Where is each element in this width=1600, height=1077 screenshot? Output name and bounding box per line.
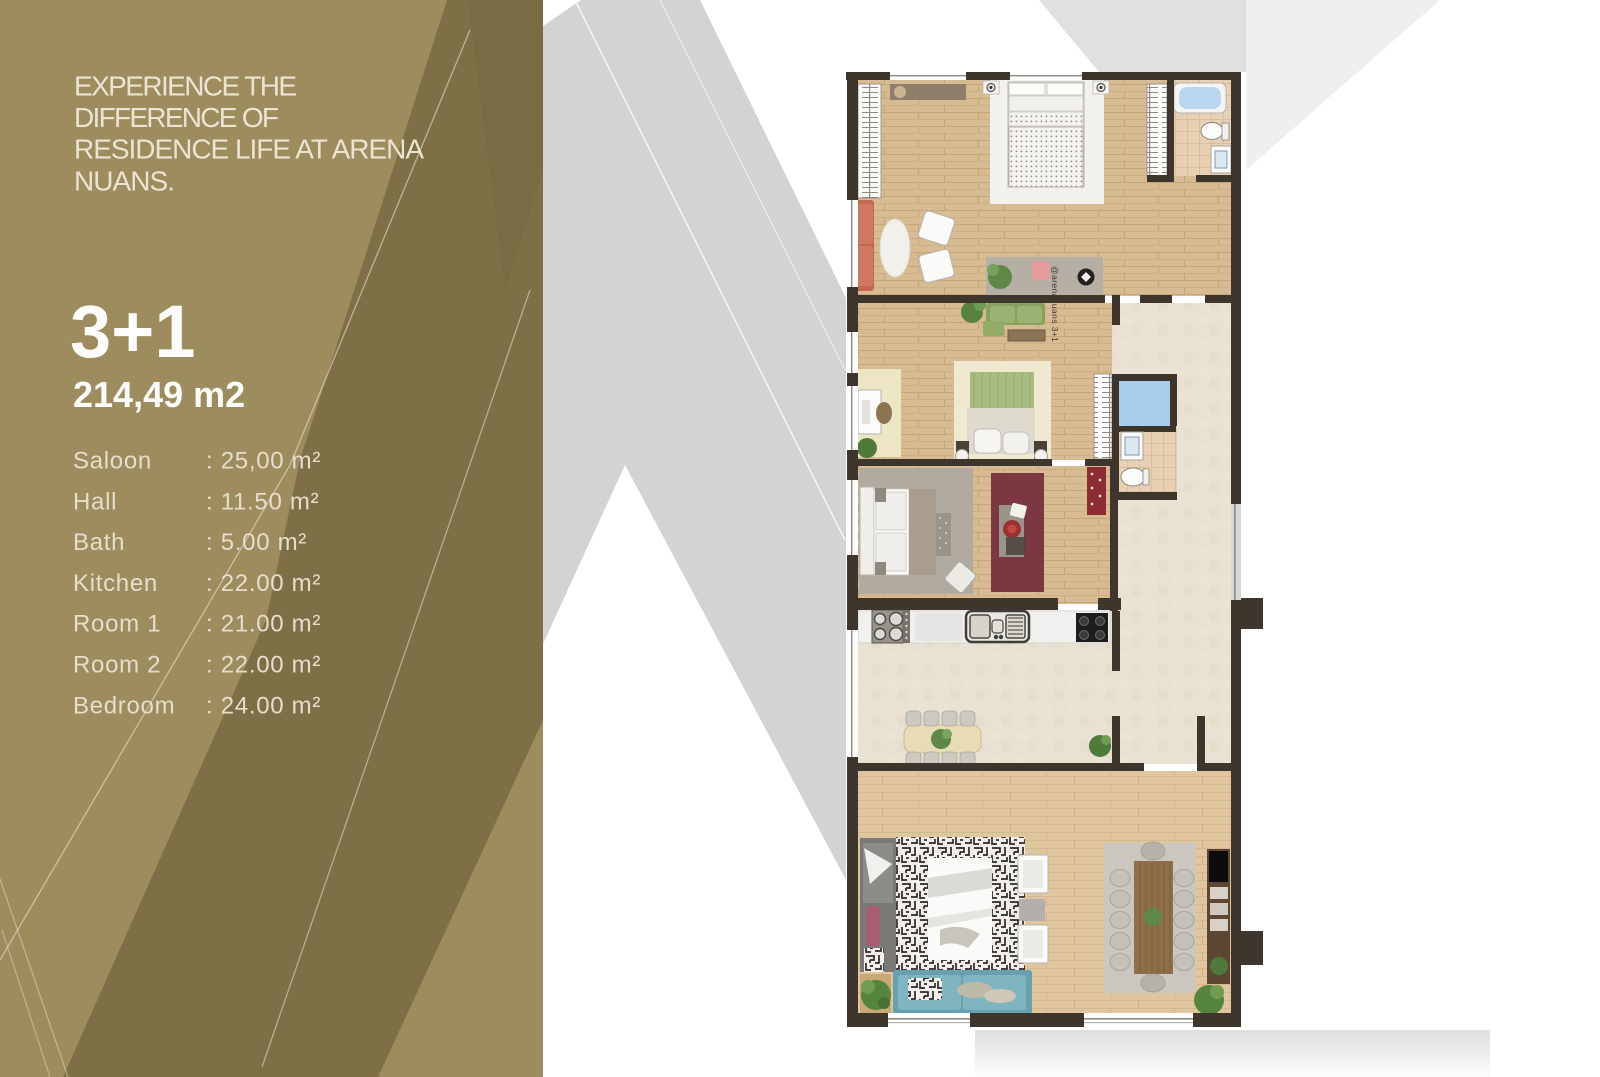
svg-text:: 24.00 m²: : 24.00 m²	[206, 692, 321, 719]
svg-text:Hall: Hall	[73, 488, 117, 515]
svg-text:Room 2: Room 2	[73, 652, 161, 679]
svg-text:Bath: Bath	[73, 529, 125, 556]
svg-text:: 21.00 m²: : 21.00 m²	[206, 611, 321, 638]
svg-text:Kitchen: Kitchen	[73, 570, 158, 597]
svg-text:: 22.00 m²: : 22.00 m²	[206, 652, 321, 679]
svg-text:: 22.00 m²: : 22.00 m²	[206, 570, 321, 597]
svg-text:DIFFERENCE OF: DIFFERENCE OF	[74, 102, 279, 133]
svg-text:3+1: 3+1	[70, 290, 196, 373]
svg-text:: 11.50 m²: : 11.50 m²	[206, 488, 319, 515]
svg-text:Saloon: Saloon	[73, 448, 152, 475]
svg-text:: 25,00 m²: : 25,00 m²	[206, 448, 321, 475]
svg-text:: 5.00 m²: : 5.00 m²	[206, 529, 307, 556]
svg-text:Room 1: Room 1	[73, 611, 161, 638]
svg-text:Bedroom: Bedroom	[73, 692, 175, 719]
svg-text:NUANS.: NUANS.	[74, 166, 175, 197]
svg-text:214,49 m2: 214,49 m2	[73, 374, 245, 415]
svg-text:EXPERIENCE THE: EXPERIENCE THE	[74, 71, 297, 102]
svg-text:@arenanuans 3+1: @arenanuans 3+1	[1050, 266, 1060, 342]
svg-text:RESIDENCE LIFE AT ARENA: RESIDENCE LIFE AT ARENA	[74, 134, 424, 165]
